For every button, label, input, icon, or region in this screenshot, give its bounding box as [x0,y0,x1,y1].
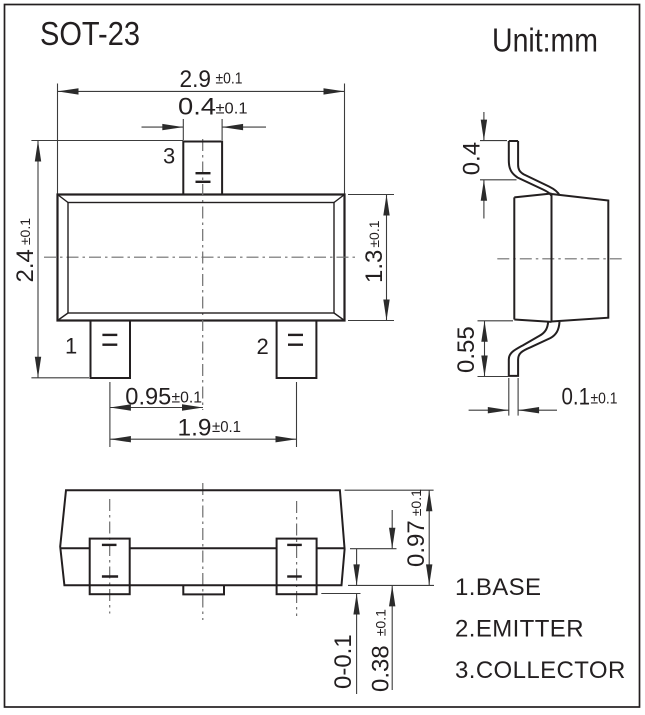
svg-text:0-0.1: 0-0.1 [330,634,357,689]
svg-text:3.COLLECTOR: 3.COLLECTOR [455,657,626,684]
svg-text:±0.1: ±0.1 [172,389,203,406]
svg-text:±0.1: ±0.1 [216,71,243,88]
svg-text:±0.1: ±0.1 [216,101,248,118]
svg-text:0.4: 0.4 [459,142,486,175]
svg-text:±0.1: ±0.1 [591,390,618,407]
svg-text:0.95: 0.95 [125,383,171,410]
svg-text:0.4: 0.4 [178,94,216,121]
svg-text:1.BASE: 1.BASE [455,574,541,601]
svg-text:2.9: 2.9 [180,66,212,93]
svg-text:3: 3 [163,143,175,168]
svg-text:1: 1 [65,333,77,358]
svg-text:0.55: 0.55 [453,326,480,373]
svg-text:±0.1: ±0.1 [212,419,241,436]
svg-text:1.9: 1.9 [178,415,212,442]
svg-text:Unit:mm: Unit:mm [492,22,598,59]
svg-text:2: 2 [257,334,269,359]
svg-text:0.1: 0.1 [562,384,591,411]
svg-text:2.EMITTER: 2.EMITTER [455,616,584,643]
svg-text:SOT-23: SOT-23 [40,15,140,52]
